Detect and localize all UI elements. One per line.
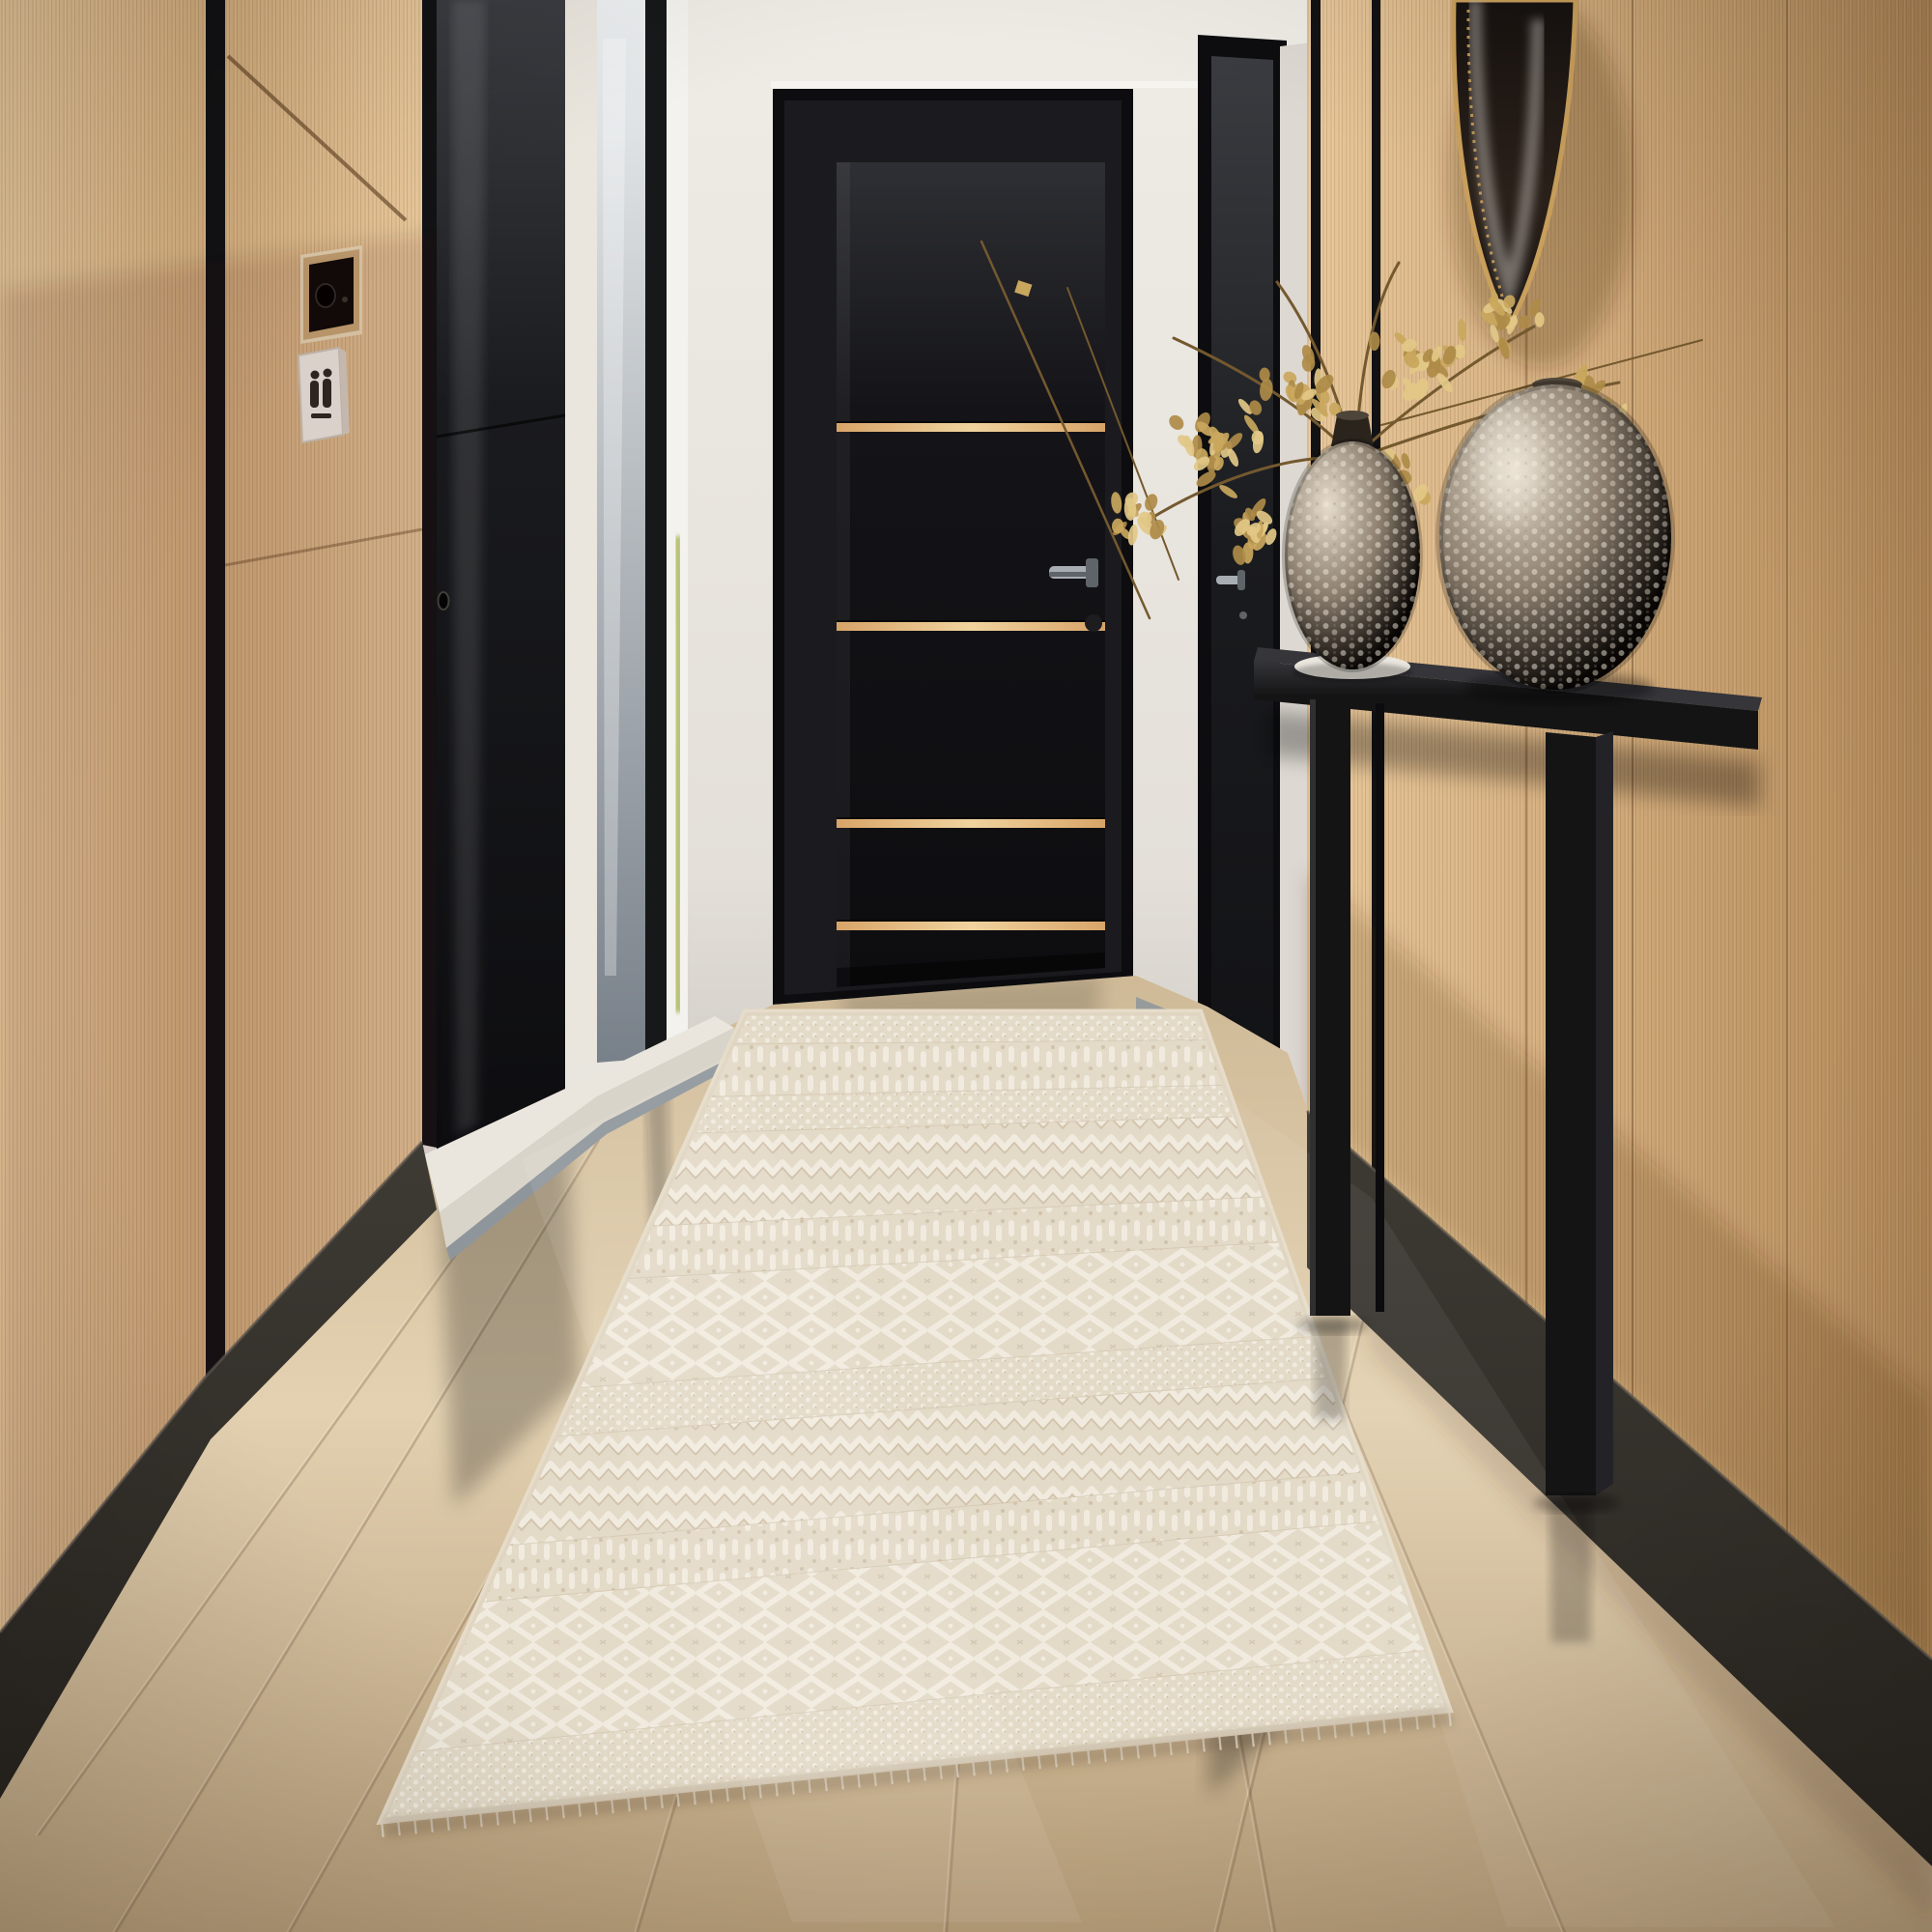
hallway-photo	[0, 0, 1932, 1932]
hallway-scene	[0, 0, 1932, 1932]
vignette	[0, 0, 1932, 1932]
